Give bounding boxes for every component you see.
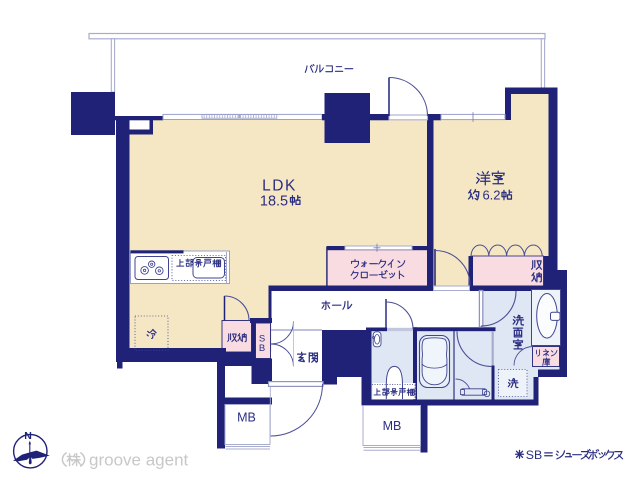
svg-text:SB: SB xyxy=(526,448,542,462)
svg-text:B: B xyxy=(259,343,265,354)
svg-text:groove agent: groove agent xyxy=(89,451,189,470)
svg-text:MB: MB xyxy=(383,419,402,433)
svg-text:LDK: LDK xyxy=(262,178,297,195)
svg-text:N: N xyxy=(24,430,32,442)
svg-text:6.2: 6.2 xyxy=(482,187,500,202)
svg-text:18.5: 18.5 xyxy=(260,194,288,210)
svg-text:MB: MB xyxy=(237,411,256,425)
